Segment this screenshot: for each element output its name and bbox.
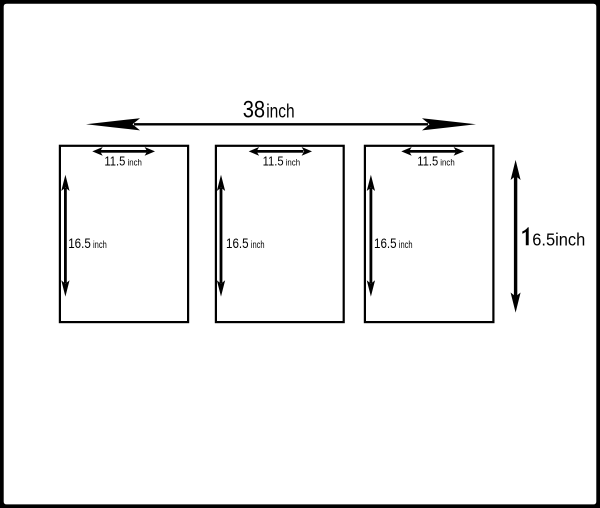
svg-text:inch: inch — [128, 157, 142, 168]
svg-text:16.5: 16.5 — [226, 236, 249, 251]
svg-text:16.5: 16.5 — [374, 236, 397, 251]
svg-text:6.5inch: 6.5inch — [532, 229, 585, 249]
svg-text:inch: inch — [93, 240, 107, 251]
svg-text:16.5: 16.5 — [68, 236, 91, 251]
svg-text:inch: inch — [399, 240, 413, 251]
svg-text:inch: inch — [440, 157, 454, 168]
svg-text:inch: inch — [266, 102, 294, 123]
svg-text:38: 38 — [243, 97, 265, 124]
svg-text:11.5: 11.5 — [263, 154, 284, 168]
svg-text:inch: inch — [286, 157, 300, 168]
svg-text:inch: inch — [251, 240, 265, 251]
svg-text:11.5: 11.5 — [104, 154, 125, 168]
svg-text:11.5: 11.5 — [417, 154, 438, 168]
